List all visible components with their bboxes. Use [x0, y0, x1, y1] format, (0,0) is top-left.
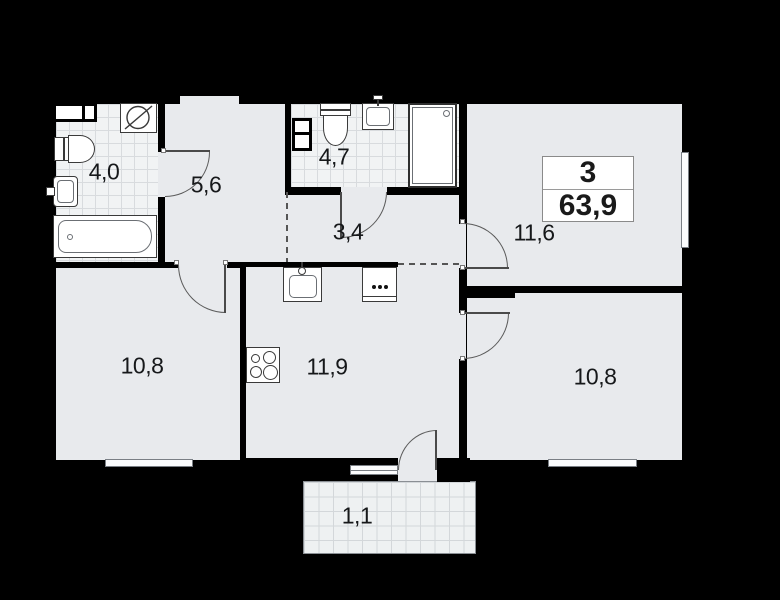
door-hinge [460, 219, 465, 224]
entrance-opening [180, 96, 239, 104]
wall [387, 187, 459, 195]
door-hinge [161, 148, 166, 153]
door-hinge [460, 265, 465, 270]
wall-right [682, 287, 688, 465]
window-bedroom-right [548, 459, 637, 467]
wall [158, 104, 165, 152]
tank-line [321, 109, 350, 111]
shower-icon [408, 103, 457, 188]
room-label-balcony: 1,1 [342, 503, 372, 530]
room-label-bathroom-large: 4,7 [319, 144, 349, 171]
wall [240, 458, 350, 480]
window-bedroom-left [105, 459, 193, 467]
door-leaf [224, 265, 226, 313]
faucet-icon [373, 95, 383, 100]
sink-basin [57, 180, 74, 203]
apartment-info-box: 3 63,9 [542, 156, 634, 222]
wall [437, 458, 470, 482]
balcony-floor [303, 481, 476, 554]
shaft-divider [295, 132, 309, 135]
burner [251, 354, 260, 363]
door-hinge [223, 260, 228, 265]
sink-icon [53, 176, 78, 207]
burner [263, 365, 278, 380]
dashed-boundary-corridor-kitchen [398, 263, 459, 265]
wall [459, 97, 466, 224]
appliance-icon [362, 267, 397, 302]
bathtub-icon [53, 215, 157, 258]
door-leaf [463, 267, 509, 269]
window-living-room [681, 152, 689, 248]
wall [285, 187, 341, 195]
room-label-bathroom-small: 4,0 [89, 159, 119, 186]
sink-icon [362, 103, 394, 130]
room-label-bedroom-left: 10,8 [121, 353, 164, 380]
washing-machine-icon [120, 103, 157, 133]
wall [285, 104, 291, 190]
balcony-window-sill [350, 465, 398, 475]
room-label-kitchen: 11,9 [306, 354, 347, 381]
apartment-rooms-count: 3 [543, 157, 633, 190]
appliance-dot [372, 285, 376, 289]
shower-drain [443, 110, 450, 117]
room-label-hallway: 5,6 [191, 172, 221, 199]
appliance-dot [384, 285, 388, 289]
door-leaf [435, 430, 437, 470]
stove-icon [246, 347, 280, 383]
room-label-living-room: 11,6 [513, 220, 554, 247]
door-gap [158, 152, 165, 197]
wall [158, 197, 165, 263]
wall [459, 286, 515, 298]
room-label-bedroom-right: 10,8 [574, 364, 617, 391]
shower-tray [412, 107, 453, 184]
dashed-boundary-hallway-corridor [286, 192, 288, 262]
sink-basin [366, 107, 390, 126]
wall [48, 262, 178, 268]
door-hinge [174, 260, 179, 265]
apartment-total-area: 63,9 [543, 190, 633, 222]
cabinet-icon [53, 103, 97, 122]
vent-shaft-icon [292, 118, 312, 151]
door-hinge [460, 356, 465, 361]
door-leaf [165, 150, 210, 152]
door-leaf [463, 312, 510, 314]
cabinet-divider [82, 106, 85, 119]
floor-plan: 4,0 5,6 4,7 3,4 11,6 10,8 11,9 10,8 1,1 … [0, 0, 780, 600]
sink-basin [289, 275, 317, 298]
toilet-tank-divider [63, 138, 65, 160]
burner [263, 351, 276, 364]
sill-line [351, 470, 397, 471]
appliance-line [363, 296, 396, 298]
room-label-corridor: 3,4 [333, 219, 363, 246]
kitchen-faucet-icon [298, 267, 306, 275]
bathtub-drain [67, 234, 73, 240]
appliance-dot [378, 285, 382, 289]
wall [459, 359, 466, 460]
faucet-icon [46, 187, 55, 196]
burner [250, 366, 262, 378]
door-hinge [460, 310, 465, 315]
